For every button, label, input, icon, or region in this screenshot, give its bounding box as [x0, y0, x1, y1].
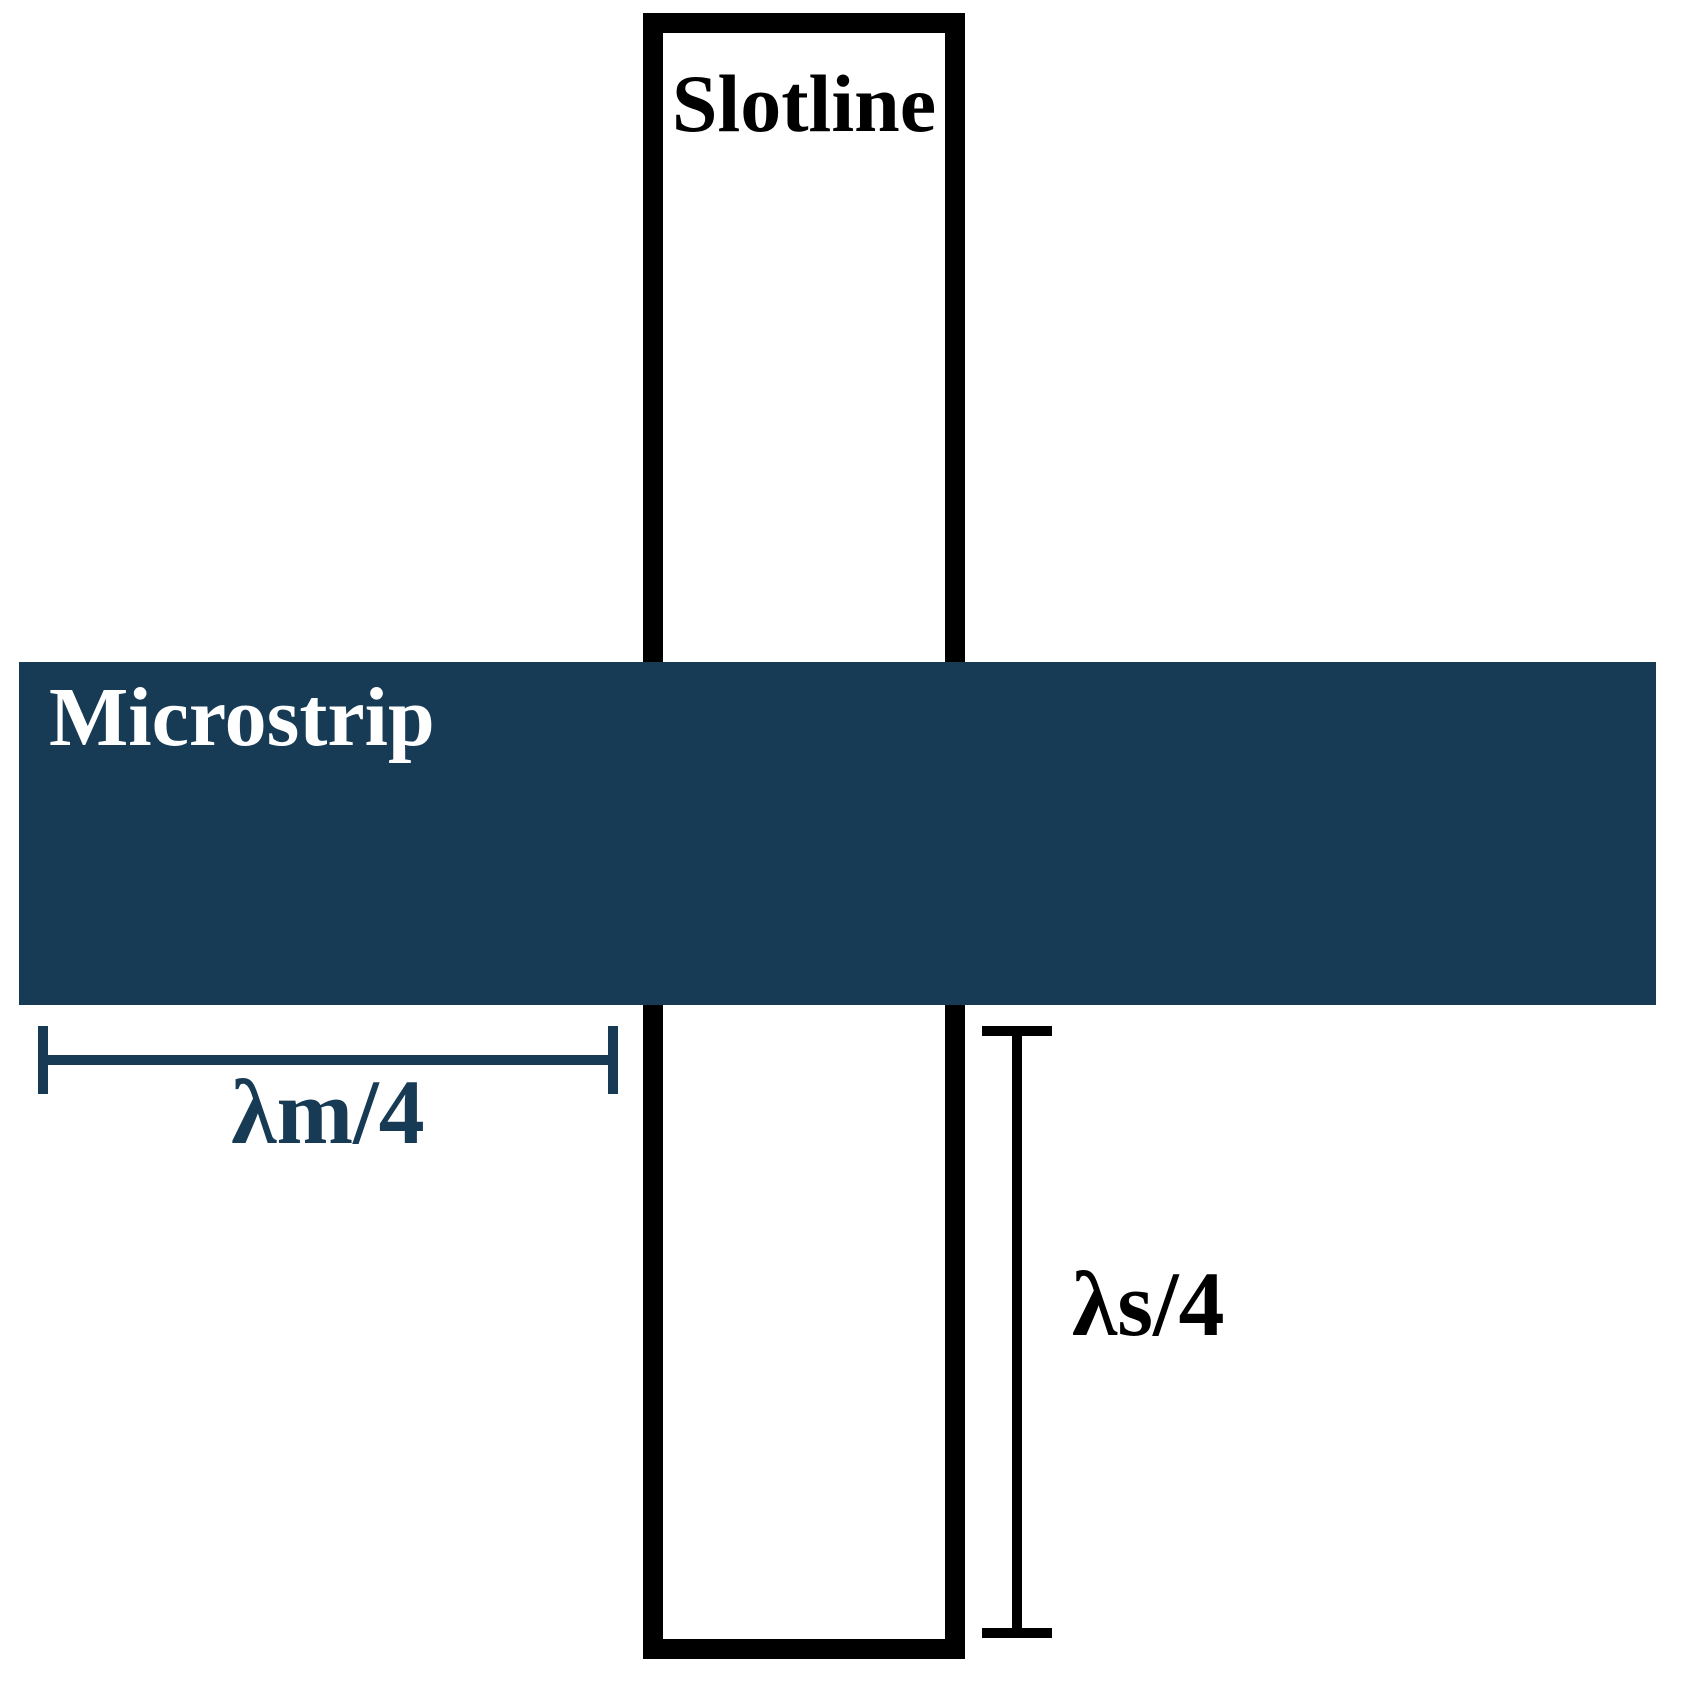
lambda-s-quarter-bracket-line — [1012, 1036, 1022, 1628]
microstrip-bar: Microstrip — [19, 662, 1656, 1005]
slotline-label: Slotline — [663, 63, 945, 145]
lambda-s-quarter-bracket — [982, 1026, 1052, 1638]
lambda-s-quarter-label: λs/4 — [1072, 1258, 1225, 1350]
lambda-m-quarter-label: λm/4 — [38, 1066, 618, 1158]
microstrip-label: Microstrip — [49, 672, 435, 764]
diagram-canvas: Slotline Microstrip λm/4 λs/4 — [0, 0, 1684, 1684]
